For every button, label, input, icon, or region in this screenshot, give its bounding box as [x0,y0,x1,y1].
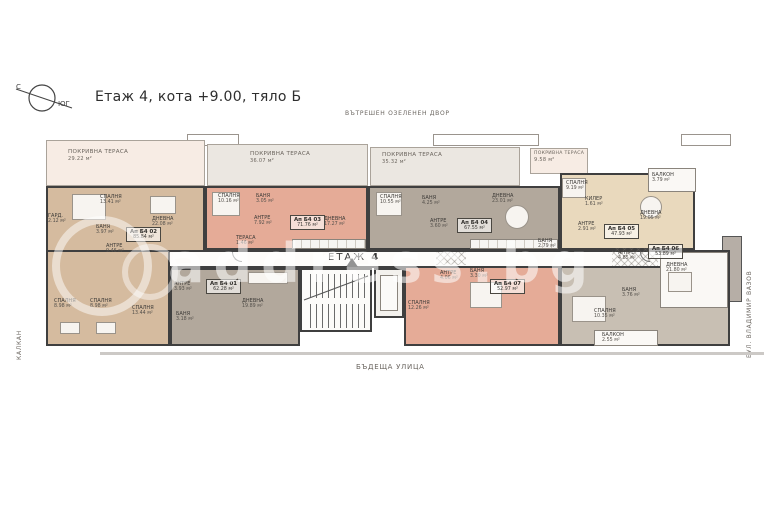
room-label: СПАЛНЯ10.35 м² [594,308,616,320]
floorplan-page: С ЮГ Етаж 4, кота +9.00, тяло Б ВЪТРЕШЕН… [0,0,764,510]
table-icon [668,272,692,292]
room-label: БАЛКОН2.55 м² [602,332,624,344]
sofa-icon [248,272,288,284]
room-label: БАНЯ3.97 м² [96,224,114,236]
room-label: БАНЯ3.18 м² [176,311,194,323]
site-label-right: БУЛ. ВЛАДИМИР ВАЗОВ [746,243,753,358]
room-label: КИЛЕР1.61 м² [585,196,603,208]
terrace-label: ПОКРИВНА ТЕРАСА35.32 м² [382,152,442,166]
room-label: АНТРЕ2.91 м² [578,221,596,233]
room-label: АНТРЕ9.46 м² [106,243,124,255]
compass-south-label: ЮГ [58,100,70,108]
room-label: СПАЛНЯ12.26 м² [408,300,430,312]
room-label: СПАЛНЯ8.98 м² [90,298,112,310]
room-label: БАЛКОН3.79 м² [652,172,674,184]
unit-b4-02 [46,186,205,252]
roof-tick [433,134,539,146]
room-label: СПАЛНЯ8.98 м² [54,298,76,310]
apartment-badge-b4-01[interactable]: Ап Б4 0162.28 м² [206,279,241,294]
room-label: АНТРЕ4.85 м² [618,250,636,262]
floor-label: ЕТАЖ 4 [328,252,380,263]
compass-north-label: С [16,83,21,91]
compass: С ЮГ [12,80,76,118]
apartment-badge-b4-04[interactable]: Ап Б4 0467.55 м² [457,218,492,233]
room-label: ДНЕВНА19.05 м² [640,210,661,222]
site-label-top: ВЪТРЕШЕН ОЗЕЛЕНЕН ДВОР [345,110,450,117]
apartment-badge-b4-05[interactable]: Ап Б4 0547.93 м² [604,224,639,239]
elevator-shaft [374,268,404,318]
staircase [300,268,372,332]
terrace-1 [46,140,205,186]
room-label: АНТРЕ3.60 м² [430,218,448,230]
apartment-badge-b4-03[interactable]: Ап Б4 0371.76 м² [290,215,325,230]
room-label: СПАЛНЯ10.16 м² [218,193,240,205]
site-label-left: КАЛКАН [16,300,23,360]
terrace-label: ПОКРИВНА ТЕРАСА9.58 м² [534,151,584,163]
terrace-label: ПОКРИВНА ТЕРАСА29.22 м² [68,149,128,163]
apartment-badge-b4-06[interactable]: Ап Б4 0653.89 м² [648,244,683,259]
desk-icon [96,322,116,334]
terrace-label: ПОКРИВНА ТЕРАСА36.07 м² [250,151,310,165]
compass-needle-icon [12,80,76,118]
room-label: БАНЯ4.25 м² [422,195,440,207]
apartment-badge-b4-07[interactable]: Ап Б4 0752.97 м² [490,279,525,294]
street-line [100,352,764,355]
table-icon [505,205,529,229]
room-label: ДНЕВНА17.27 м² [324,216,345,228]
room-label: СПАЛНЯ13.41 м² [100,194,122,206]
room-label: ТЕРАСА1.46 м² [236,235,256,247]
room-label: ГАРД.2.12 м² [48,213,66,225]
room-label: БАНЯ3.76 м² [622,287,640,299]
table-icon [150,196,176,214]
site-label-bottom: БЪДЕЩА УЛИЦА [356,363,425,371]
room-label: ДНЕВНА19.89 м² [242,298,263,310]
room-label: БАНЯ3.30 м² [470,268,488,280]
room-label: СПАЛНЯ9.19 м² [566,180,588,192]
desk-icon [60,322,80,334]
room-label: АНТРЕ7.92 м² [254,215,272,227]
kitchen-counter [292,239,366,249]
room-label: БАНЯ2.79 м² [538,238,556,250]
entry-hatch [436,252,466,265]
page-title: Етаж 4, кота +9.00, тяло Б [95,89,301,105]
room-label: БАНЯ3.05 м² [256,193,274,205]
apartment-badge-b4-02[interactable]: Ап Б4 0285.84 м² [126,227,161,242]
corridor [170,250,672,268]
room-label: АНТРЕ3.93 м² [174,281,192,293]
roof-tick [681,134,731,146]
room-label: АНТРЕ4.06 м² [440,270,458,282]
room-label: ДНЕВНА21.80 м² [666,262,687,274]
room-label: СПАЛНЯ13.44 м² [132,305,154,317]
room-label: ДНЕВНА23.01 м² [492,193,513,205]
room-label: СПАЛНЯ10.55 м² [380,194,402,206]
